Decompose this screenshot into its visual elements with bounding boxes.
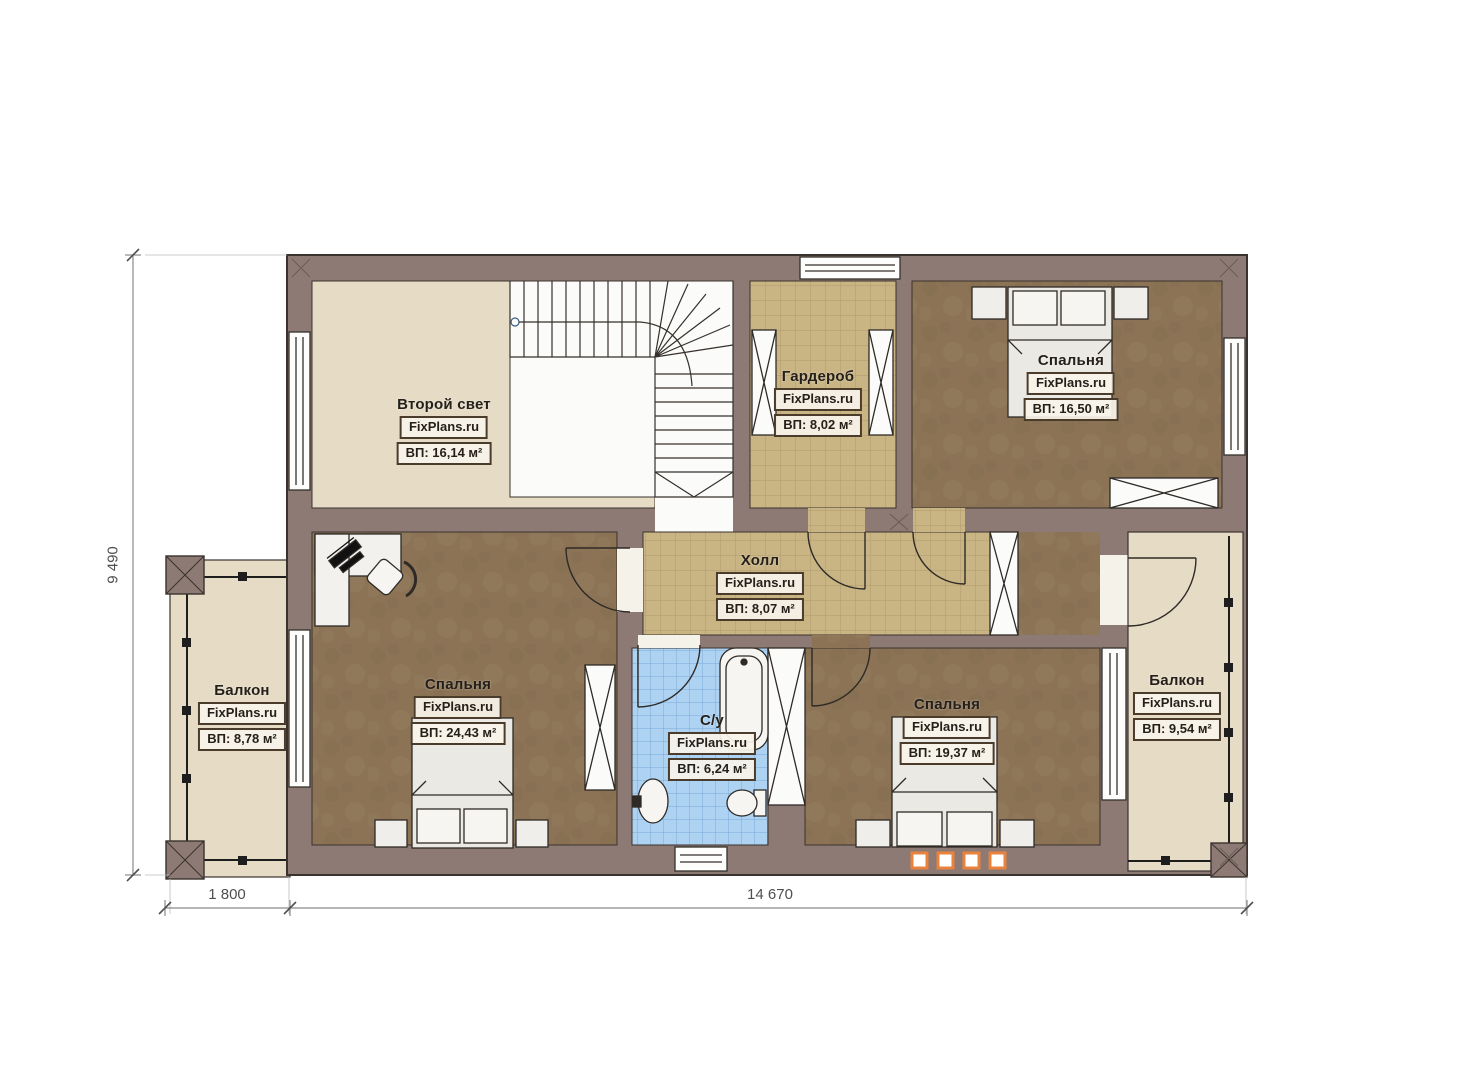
wardrobe-unit: [752, 330, 776, 435]
room-name: Спальня: [1038, 352, 1104, 369]
window: [675, 847, 727, 871]
area-box: ВП: 6,24 м²: [668, 758, 756, 781]
window: [1102, 648, 1126, 800]
room-label-wardrobe: Гардероб FixPlans.ru ВП: 8,02 м²: [774, 368, 862, 437]
room-label-bedroom-bottom-right: Спальня FixPlans.ru ВП: 19,37 м²: [900, 696, 995, 765]
window: [289, 332, 310, 490]
room-name: Спальня: [914, 696, 980, 713]
wardrobe-unit: [1110, 478, 1218, 508]
balcony-post: [1211, 843, 1247, 877]
room-name: Холл: [741, 552, 779, 569]
room-name: Второй свет: [397, 396, 491, 413]
area-box: ВП: 9,54 м²: [1133, 718, 1221, 741]
wardrobe-unit: [585, 665, 615, 790]
dimension-line-vertical: [125, 249, 141, 881]
wardrobe-unit: [990, 532, 1018, 635]
room-label-balcony-left: Балкон FixPlans.ru ВП: 8,78 м²: [198, 682, 286, 751]
dimension-line-horizontal: [159, 900, 1253, 916]
dimension-label-balcony-width: 1 800: [208, 886, 246, 903]
floor-plan-page: Второй свет FixPlans.ru ВП: 16,14 м² Гар…: [0, 0, 1473, 1080]
room-name: Гардероб: [782, 368, 855, 385]
room-label-second-light: Второй свет FixPlans.ru ВП: 16,14 м²: [397, 396, 492, 465]
area-box: ВП: 16,14 м²: [397, 442, 492, 465]
window: [289, 630, 310, 787]
balcony-post: [166, 556, 204, 594]
room-label-hall: Холл FixPlans.ru ВП: 8,07 м²: [716, 552, 804, 621]
wardrobe-unit: [869, 330, 893, 435]
room-label-bedroom-top-right: Спальня FixPlans.ru ВП: 16,50 м²: [1024, 352, 1119, 421]
watermark-box: FixPlans.ru: [198, 702, 286, 725]
floor-plan-drawing: [0, 0, 1473, 1080]
watermark-box: FixPlans.ru: [1027, 372, 1115, 395]
room-label-bathroom: С/у FixPlans.ru ВП: 6,24 м²: [668, 712, 756, 781]
room-name: С/у: [700, 712, 724, 729]
watermark-box: FixPlans.ru: [668, 732, 756, 755]
area-box: ВП: 8,02 м²: [774, 414, 862, 437]
watermark-box: FixPlans.ru: [774, 388, 862, 411]
area-box: ВП: 19,37 м²: [900, 742, 995, 765]
room-name: Спальня: [425, 676, 491, 693]
room-name: Балкон: [1149, 672, 1204, 689]
room-label-balcony-right: Балкон FixPlans.ru ВП: 9,54 м²: [1133, 672, 1221, 741]
balcony-post: [166, 841, 204, 879]
watermark-box: FixPlans.ru: [716, 572, 804, 595]
dimension-label-house-width: 14 670: [747, 886, 793, 903]
watermark-box: FixPlans.ru: [903, 716, 991, 739]
room-name: Балкон: [214, 682, 269, 699]
room-label-bedroom-bottom-left: Спальня FixPlans.ru ВП: 24,43 м²: [411, 676, 506, 745]
wardrobe-unit: [768, 648, 805, 805]
watermark-box: FixPlans.ru: [1133, 692, 1221, 715]
watermark-box: FixPlans.ru: [400, 416, 488, 439]
area-box: ВП: 8,78 м²: [198, 728, 286, 751]
watermark-box: FixPlans.ru: [414, 696, 502, 719]
area-box: ВП: 16,50 м²: [1024, 398, 1119, 421]
toilet: [727, 790, 766, 816]
dimension-label-height: 9 490: [105, 546, 122, 584]
window: [800, 257, 900, 279]
area-box: ВП: 8,07 м²: [716, 598, 804, 621]
window: [1224, 338, 1245, 455]
area-box: ВП: 24,43 м²: [411, 722, 506, 745]
